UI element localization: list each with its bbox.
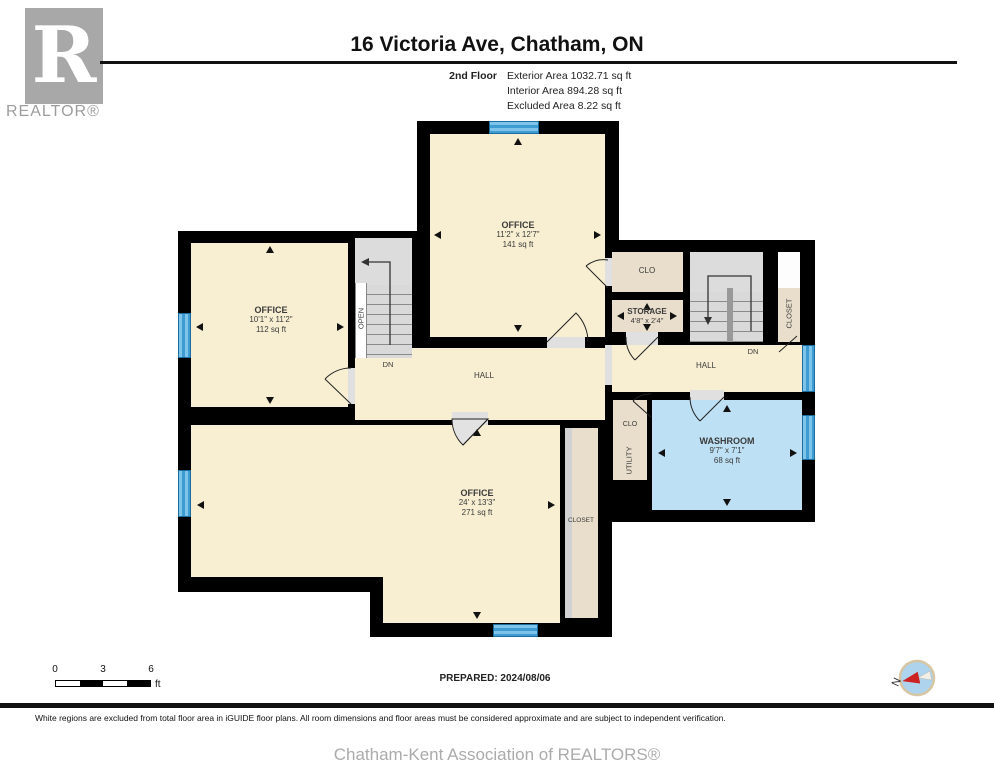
label-clo-small: CLO [612, 421, 648, 428]
compass-icon: N [885, 655, 949, 703]
footer-rule [0, 703, 994, 708]
label-dn-left: DN [373, 360, 403, 369]
scale-tick-6: 6 [141, 664, 161, 675]
scale-segment [127, 681, 151, 686]
scale-unit: ft [155, 679, 161, 690]
label-dn-right: DN [738, 347, 768, 356]
scale-tick-3: 3 [93, 664, 113, 675]
label-office-left: OFFICE 10'1" x 11'2" 112 sq ft [200, 305, 342, 335]
association-text: Chatham-Kent Association of REALTORS® [0, 745, 994, 765]
label-hall-left: HALL [454, 371, 514, 380]
plan-annotations [0, 0, 994, 768]
label-closet-right: CLOSET [785, 284, 794, 344]
scale-segment [56, 681, 80, 686]
floor-plan: OFFICE 11'2" x 12'7" 141 sq ft OFFICE 10… [0, 0, 994, 768]
floor-plan-page: R REALTOR® 16 Victoria Ave, Chatham, ON … [0, 0, 994, 768]
label-washroom: WASHROOM 9'7" x 7'1" 68 sq ft [656, 436, 798, 466]
label-open: OPEN [357, 289, 366, 349]
label-office-top: OFFICE 11'2" x 12'7" 141 sq ft [447, 220, 589, 250]
label-closet-bottom: CLOSET [551, 517, 611, 524]
label-hall-right: HALL [676, 361, 736, 370]
disclaimer-text: White regions are excluded from total fl… [35, 713, 975, 723]
scale-segment [103, 681, 127, 686]
label-office-bottom: OFFICE 24' x 13'3" 271 sq ft [406, 488, 548, 518]
label-storage: STORAGE 4'8" x 2'4" [611, 307, 683, 325]
scale-tick-0: 0 [45, 664, 65, 675]
label-utility: UTILITY [625, 431, 634, 491]
prepared-date: PREPARED: 2024/08/06 [395, 673, 595, 684]
scale-segment [80, 681, 104, 686]
scale-bar [55, 680, 151, 687]
label-clo-top: CLO [611, 266, 683, 275]
